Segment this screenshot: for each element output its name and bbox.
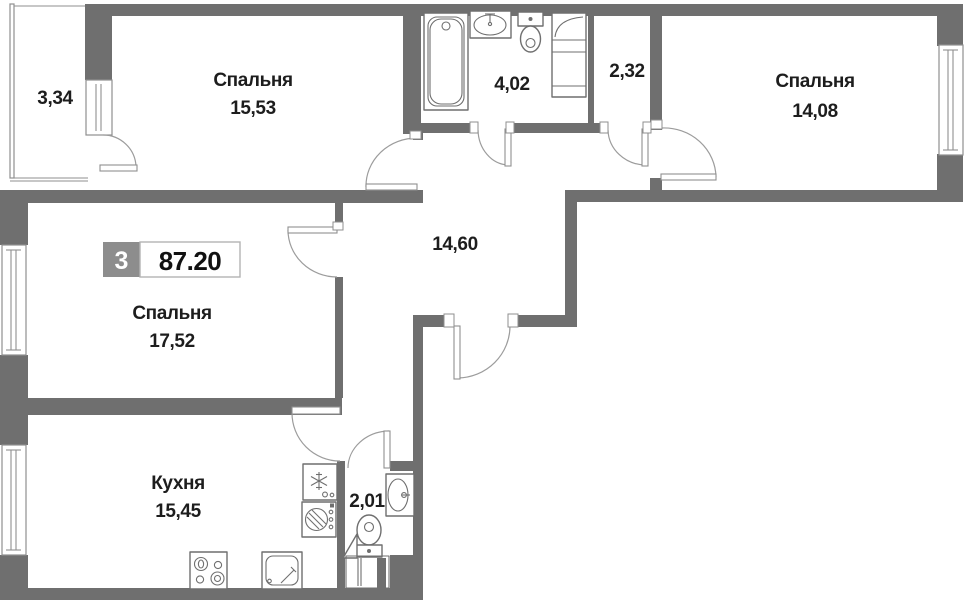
washing-machine-icon: [302, 502, 336, 537]
door-bedroom-top-right: [651, 120, 716, 180]
window-bedroom-right: [939, 45, 963, 155]
room-area-bathroom: 4,02: [494, 74, 529, 95]
room-area-kitchen: 15,45: [155, 501, 201, 522]
room-name-bedroom-top-left: Спальня: [213, 70, 292, 91]
room-area-bedroom-top-left: 15,53: [230, 98, 276, 119]
kitchen-fixtures: [190, 464, 337, 589]
stove-icon: [190, 552, 227, 589]
walls: [0, 4, 963, 600]
door-bedroom-top-left: [366, 131, 421, 190]
washbasin-small-icon: [386, 474, 414, 516]
window-balcony-door: [86, 80, 112, 135]
badge-rooms-count: 3: [115, 247, 129, 275]
room-area-hallway: 14,60: [432, 234, 478, 255]
door-bathroom: [470, 122, 514, 166]
bathroom-fixtures: [424, 11, 586, 110]
badge-total-area: 87.20: [159, 246, 222, 276]
room-area-bathroom-small: 2,01: [349, 491, 385, 512]
kitchen-sink-icon: [262, 552, 302, 589]
floor-plan: Спальня 15,53 3,34 4,02 2,32 Спальня 14,…: [0, 0, 966, 600]
toilet-small-icon: [356, 515, 382, 557]
door-kitchen: [292, 407, 340, 461]
vent-shaft-icon: [346, 556, 389, 588]
room-area-wc: 2,32: [609, 61, 644, 82]
toilet-icon: [518, 12, 543, 52]
room-area-bedroom-top-right: 14,08: [792, 101, 838, 122]
apartment-badge: 3 87.20: [103, 242, 240, 277]
utility-cabinet-icon: [552, 13, 586, 97]
door-wc: [600, 122, 651, 166]
window-kitchen: [2, 445, 26, 555]
fridge-icon: [303, 464, 337, 500]
corner-shelf-icon: [343, 534, 357, 558]
room-area-bedroom-left: 17,52: [149, 331, 195, 352]
room-name-kitchen: Кухня: [151, 473, 205, 494]
doors: [100, 120, 716, 468]
door-entrance: [444, 314, 518, 379]
bathtub-icon: [424, 13, 468, 110]
room-area-balcony: 3,34: [37, 88, 73, 109]
room-name-bedroom-top-right: Спальня: [775, 71, 854, 92]
door-bedroom-left: [288, 222, 343, 277]
room-name-bedroom-left: Спальня: [132, 303, 211, 324]
washbasin-icon: [470, 11, 511, 38]
door-balcony: [100, 135, 137, 171]
door-bathroom-small: [348, 431, 390, 468]
window-bedroom-left: [2, 245, 26, 355]
